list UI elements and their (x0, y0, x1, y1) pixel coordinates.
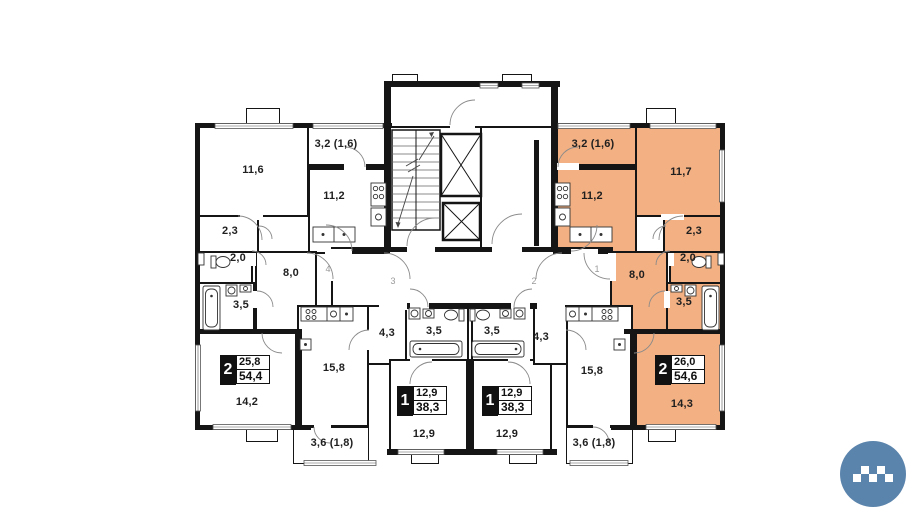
room-area-label: 14,3 (671, 398, 693, 410)
room-area-label: 2,3 (686, 225, 702, 237)
room-area-label: 15,8 (323, 362, 345, 374)
room-area-label: 12,9 (496, 428, 518, 440)
room-area-label: 4,3 (379, 327, 395, 339)
room-area-label: 8,0 (283, 267, 299, 279)
unit-number: 2 (531, 276, 536, 286)
badge-living-area: 25,8 (236, 355, 270, 370)
badge-room-count: 2 (655, 355, 671, 385)
logo-button[interactable] (840, 441, 906, 507)
apartment-badge-unit-1: 2 26,0 54,6 (655, 355, 705, 385)
room-area-label: 4,3 (533, 331, 549, 343)
room-area-label: 3,5 (676, 296, 692, 308)
badge-room-count: 1 (397, 386, 413, 416)
room-area-label: 3,2 (1,6) (572, 138, 615, 150)
unit-number: 1 (594, 264, 599, 274)
badge-total-area: 38,3 (498, 400, 532, 415)
badge-total-area: 54,4 (236, 369, 270, 384)
badge-living-area: 12,9 (413, 386, 447, 401)
room-area-label: 2,3 (222, 225, 238, 237)
apartment-badge-unit-3: 1 12,9 38,3 (397, 386, 447, 416)
room-area-label: 3,5 (426, 325, 442, 337)
unit-number: 4 (325, 264, 330, 274)
room-area-label: 3,6 (1,8) (311, 437, 354, 449)
badge-total-area: 54,6 (671, 369, 705, 384)
room-area-label: 12,9 (413, 428, 435, 440)
room-area-label: 14,2 (236, 396, 258, 408)
room-area-label: 3,2 (1,6) (315, 138, 358, 150)
room-area-label: 2,0 (680, 252, 696, 264)
unit-number: 3 (390, 276, 395, 286)
floor-plan: 11,6 3,2 (1,6) 11,2 2,3 2,0 3,5 8,0 14,2… (0, 0, 917, 516)
badge-room-count: 2 (220, 355, 236, 385)
room-area-label: 15,8 (581, 365, 603, 377)
room-area-label: 8,0 (629, 269, 645, 281)
apartment-badge-unit-2: 1 12,9 38,3 (482, 386, 532, 416)
badge-living-area: 12,9 (498, 386, 532, 401)
room-area-label: 2,0 (230, 252, 246, 264)
room-area-label: 3,5 (233, 299, 249, 311)
room-area-label: 11,2 (581, 190, 603, 202)
room-area-label: 3,5 (484, 325, 500, 337)
badge-living-area: 26,0 (671, 355, 705, 370)
room-area-label: 11,6 (242, 164, 264, 176)
logo-m-icon (853, 466, 893, 482)
badge-total-area: 38,3 (413, 400, 447, 415)
room-area-label: 11,7 (670, 166, 692, 178)
badge-room-count: 1 (482, 386, 498, 416)
room-area-label: 3,6 (1,8) (573, 437, 616, 449)
room-labels: 11,6 3,2 (1,6) 11,2 2,3 2,0 3,5 8,0 14,2… (0, 0, 917, 516)
apartment-badge-unit-4: 2 25,8 54,4 (220, 355, 270, 385)
room-area-label: 11,2 (323, 190, 345, 202)
